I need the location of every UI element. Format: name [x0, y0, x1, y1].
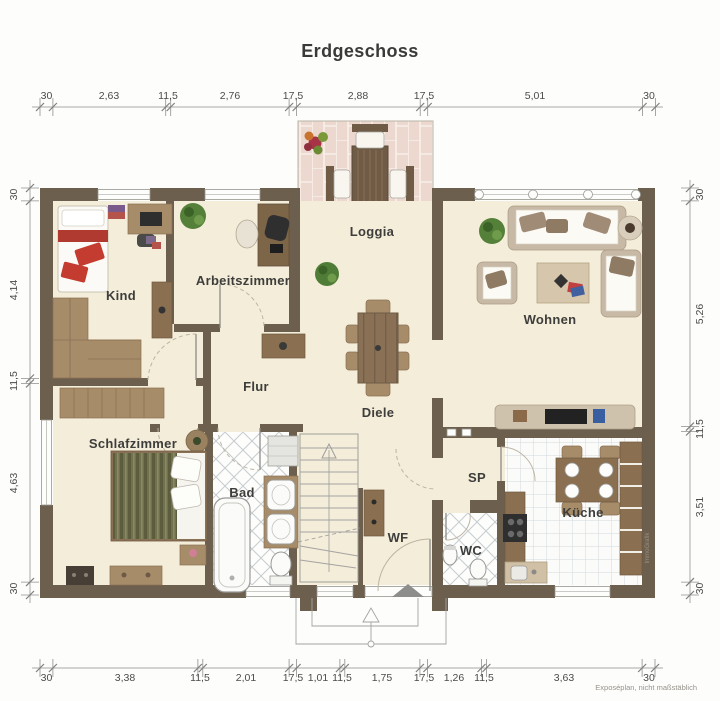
label-kueche: Küche	[562, 505, 603, 520]
sink	[267, 480, 295, 510]
dim-label-left-4: 30	[8, 583, 20, 595]
sink	[267, 514, 295, 544]
dim-label-bottom-6: 11,5	[332, 672, 352, 684]
dim-label-top-3: 2,76	[220, 90, 241, 102]
dim-label-bottom-2: 11,5	[190, 672, 210, 684]
side-table	[618, 216, 642, 240]
label-flur: Flur	[243, 379, 269, 394]
label-bad: Bad	[229, 485, 254, 500]
tv-sideboard	[495, 405, 635, 429]
dim-label-bottom-8: 17,5	[414, 672, 435, 684]
kitchen-counter-right	[620, 442, 642, 575]
storage-box	[66, 566, 94, 585]
nightstand	[180, 545, 206, 565]
dim-label-bottom-1: 3,38	[115, 672, 136, 684]
dim-label-top-4: 17,5	[283, 90, 304, 102]
bath-shelf	[268, 436, 298, 466]
floorplan-page: Erdgeschoss 302,6311,52,7617,52,8817,55,…	[0, 0, 720, 701]
label-wc: WC	[460, 543, 483, 558]
armchair	[477, 262, 517, 304]
wardrobe-wf	[364, 490, 384, 536]
dim-label-right-4: 30	[694, 583, 706, 595]
label-sp: SP	[468, 470, 486, 485]
dim-label-top-2: 11,5	[158, 90, 178, 102]
watermark: ImmoGrafik	[645, 532, 651, 564]
label-kind: Kind	[106, 288, 136, 303]
bed-kind	[58, 206, 108, 292]
kind-play-mat	[108, 205, 125, 219]
dim-label-right-2: 11,5	[694, 419, 706, 439]
dim-label-bottom-4: 17,5	[283, 672, 304, 684]
toilet	[469, 559, 487, 586]
dim-label-right-1: 5,26	[694, 304, 706, 325]
label-loggia: Loggia	[350, 224, 395, 239]
label-wohnen: Wohnen	[524, 312, 577, 327]
dim-label-bottom-11: 3,63	[554, 672, 575, 684]
dim-label-top-6: 17,5	[414, 90, 435, 102]
plant-icon	[479, 218, 505, 244]
plant-icon	[315, 262, 339, 286]
plan-caption: Exposéplan, nicht maßstäblich	[595, 683, 697, 692]
label-arbeitszimmer: Arbeitszimmer	[196, 273, 290, 288]
dim-label-top-8: 30	[643, 90, 655, 102]
dim-label-top-7: 5,01	[525, 90, 546, 102]
dim-label-top-5: 2,88	[348, 90, 369, 102]
dim-label-bottom-10: 11,5	[474, 672, 494, 684]
stove	[503, 514, 527, 542]
dim-label-bottom-5: 1,01	[308, 672, 329, 684]
kitchen-sink	[505, 562, 547, 583]
label-diele: Diele	[362, 405, 395, 420]
plant-icon	[180, 203, 206, 229]
shelf-kind	[152, 282, 172, 338]
kitchen-counter-left	[503, 492, 527, 568]
page-title: Erdgeschoss	[301, 41, 418, 61]
coffee-table	[537, 263, 589, 303]
toilet	[270, 552, 292, 585]
dim-label-top-0: 30	[41, 90, 53, 102]
floorplan-canvas: Erdgeschoss 302,6311,52,7617,52,8817,55,…	[0, 0, 720, 701]
bathtub	[214, 498, 250, 592]
sofa-right	[601, 250, 641, 317]
sink	[443, 545, 457, 565]
dim-label-bottom-3: 2,01	[236, 672, 257, 684]
entrance-porch	[296, 598, 446, 647]
dresser	[110, 566, 162, 585]
dim-label-left-2: 11,5	[8, 371, 20, 391]
dim-label-left-3: 4,63	[8, 473, 20, 494]
dim-label-right-0: 30	[694, 189, 706, 201]
label-wf: WF	[388, 530, 409, 545]
dim-label-top-1: 2,63	[99, 90, 120, 102]
sofa-top	[508, 206, 626, 250]
label-schlafzimmer: Schlafzimmer	[89, 436, 177, 451]
wardrobe-schlafzimmer	[60, 388, 164, 418]
dim-label-bottom-0: 30	[41, 672, 53, 684]
double-bed	[111, 451, 207, 541]
dim-label-bottom-7: 1,75	[372, 672, 393, 684]
dim-label-left-0: 30	[8, 189, 20, 201]
dim-label-left-1: 4,14	[8, 280, 20, 301]
dim-label-bottom-9: 1,26	[444, 672, 465, 684]
dim-label-right-3: 3,51	[694, 497, 706, 518]
